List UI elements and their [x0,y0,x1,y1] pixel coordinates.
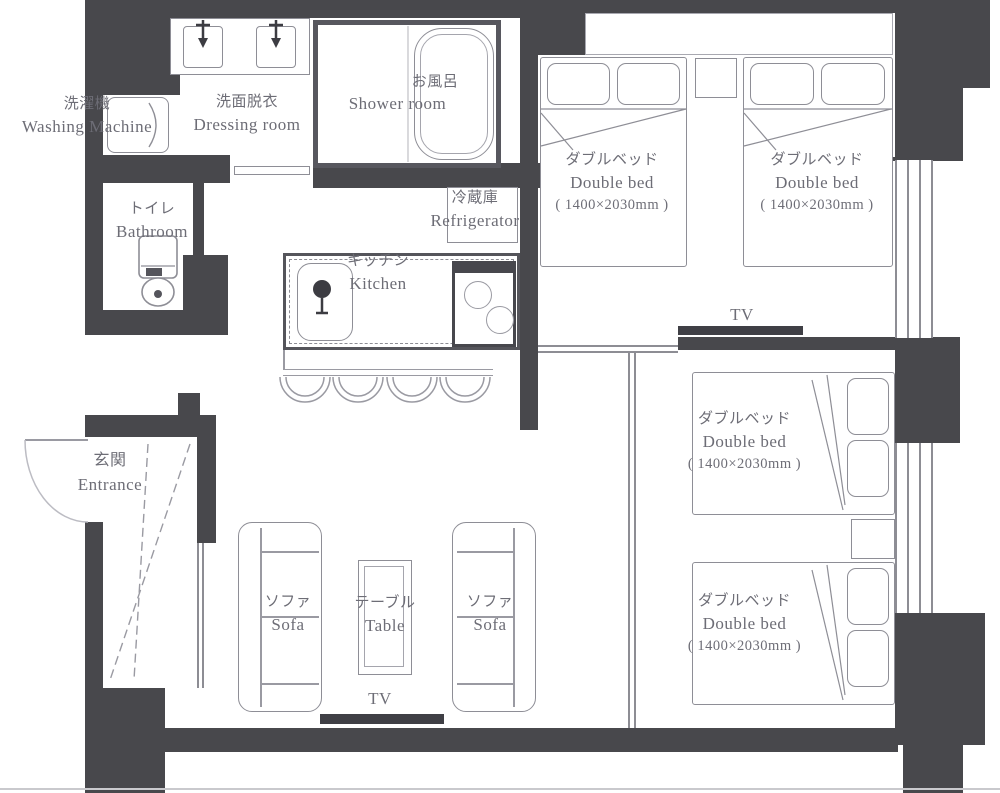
toilet [139,236,177,306]
label-bathroom: トイレ Bathroom [97,199,207,244]
sofa-arm-line [457,551,513,553]
label-bed-lower-2: ダブルベッド Double bed ( 1400×2030mm ) [657,591,832,657]
tv-living [320,714,444,724]
wall-segment [85,155,230,183]
stove-knob-strip [455,264,513,273]
label-shower-room-jp: お風呂 [385,72,485,93]
label-bathroom-en: Bathroom [97,220,207,244]
wall-segment [903,745,963,793]
toilet-drain [154,290,162,298]
dressing-room-door [234,166,310,175]
label-washing-machine-jp: 洗濯機 [2,94,172,115]
label-kitchen: キッチン Kitchen [323,251,433,296]
stove-burner [464,281,492,309]
sofa-arm-line [261,551,319,553]
wall-segment [85,522,103,688]
label-tv-bedroom: TV [712,303,772,327]
wall-segment [197,415,216,543]
wall-segment [895,337,960,443]
window [895,443,933,613]
wall-segment [85,415,197,437]
bar-stool [280,377,490,402]
label-kitchen-en: Kitchen [323,272,433,296]
label-entrance: 玄関 Entrance [45,450,175,497]
wall-segment [895,88,963,160]
label-entrance-en: Entrance [45,473,175,497]
bedroom-closet-strip [585,13,893,55]
pillow [821,63,885,105]
label-refrigerator-en: Refrigerator [410,209,540,233]
toilet-flush [146,268,162,276]
label-dressing-room-jp: 洗面脱衣 [167,92,327,113]
label-bed-lower-1: ダブルベッド Double bed ( 1400×2030mm ) [657,409,832,475]
label-dressing-room: 洗面脱衣 Dressing room [167,92,327,137]
floor-plan: 洗濯機 Washing Machine 洗面脱衣 Dressing room お… [0,0,1000,793]
sofa-arm-line [261,683,319,685]
wash-basin [256,26,296,68]
label-bathroom-jp: トイレ [97,199,207,220]
pillow [847,378,889,435]
label-refrigerator-jp: 冷蔵庫 [410,188,540,209]
label-table: テーブル Table [340,593,430,638]
stove-burner [486,306,514,334]
label-tv-living: TV [350,687,410,711]
wall-segment [678,337,895,350]
label-washing-machine-en: Washing Machine [2,115,172,139]
label-entrance-jp: 玄関 [45,450,175,473]
wash-basin [183,26,223,68]
nightstand [695,58,737,98]
nightstand [851,519,895,559]
tv-bedroom [678,326,803,335]
pillow [547,63,610,105]
label-shower-room-en: Shower room [325,92,470,116]
wall-segment [528,0,990,13]
pillow [617,63,680,105]
wall-segment [178,393,200,415]
bar-counter-edge [283,369,493,376]
label-bed-upper-1: ダブルベッド Double bed ( 1400×2030mm ) [527,150,697,216]
sofa-arm-line [457,683,513,685]
bar-counter-side [283,350,285,370]
wall-segment [895,613,985,745]
pillow [847,568,889,625]
label-bed-upper-2: ダブルベッド Double bed ( 1400×2030mm ) [732,150,902,216]
label-dressing-room-en: Dressing room [167,113,327,137]
wall-segment [165,728,898,752]
wall-segment [183,255,228,335]
sliding-door-bedroom [538,345,678,353]
partition-closet [197,543,204,688]
pillow [750,63,814,105]
label-sofa-right: ソファ Sofa [445,592,535,637]
wall-segment [180,0,530,18]
wall-segment [85,310,185,335]
wall-segment [85,0,180,95]
label-washing-machine: 洗濯機 Washing Machine [2,94,172,139]
label-kitchen-jp: キッチン [323,251,433,272]
wall-segment [85,688,165,793]
label-sofa-left: ソファ Sofa [243,592,333,637]
wall-segment [895,13,990,88]
partition-lower-bedroom [628,352,636,728]
pillow [847,630,889,687]
label-refrigerator: 冷蔵庫 Refrigerator [410,188,540,233]
pillow [847,440,889,497]
